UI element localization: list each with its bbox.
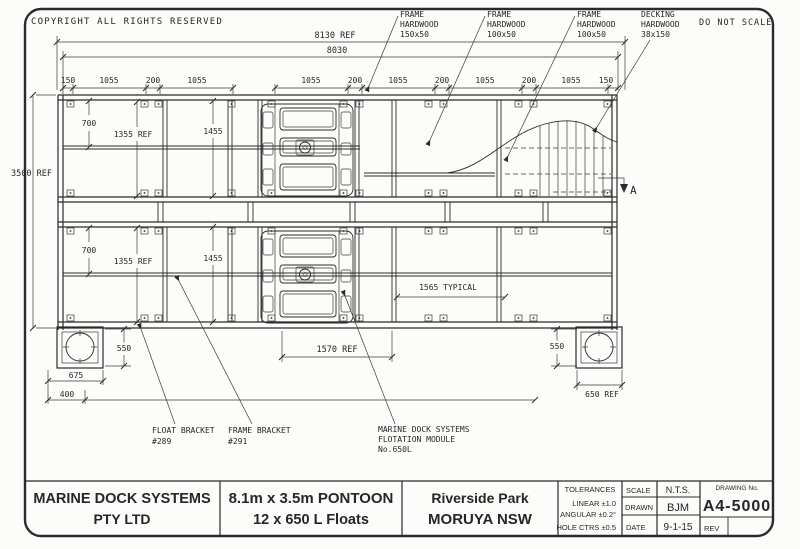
dim-1565-typical: 1565 TYPICAL [419, 283, 477, 292]
decking-planks [447, 121, 617, 197]
flotation-module-bottom [261, 231, 353, 323]
tolerance-linear: LINEAR ±1.0 [572, 499, 616, 508]
dim-675: 675 [69, 371, 84, 380]
dim-3500-ref: 3500 REF [11, 169, 52, 179]
dim-1455-top: 1455 [203, 127, 222, 136]
pontoon-drawing: COPYRIGHT ALL RIGHTS RESERVED DO NOT SCA… [0, 0, 800, 549]
drawn-label: DRAWN [625, 503, 653, 512]
section-a-label: A [630, 184, 637, 197]
callout-float-bracket: FLOAT BRACKET#289 [141, 329, 215, 446]
pile-guide-right [576, 327, 622, 368]
drawn-value: BJM [667, 502, 689, 514]
do-not-scale-note: DO NOT SCALE [699, 18, 772, 28]
dim-chain: 200 [146, 76, 161, 85]
drawing-sheet: COPYRIGHT ALL RIGHTS RESERVED DO NOT SCA… [0, 0, 800, 549]
date-label: DATE [626, 523, 645, 532]
drawing-no-value: A4-5000 [703, 498, 771, 515]
svg-text:FRAME BRACKET#291: FRAME BRACKET#291 [228, 426, 291, 446]
dim-550-left: 550 [117, 344, 132, 353]
drawing-no-label: DRAWING No. [715, 485, 758, 492]
tolerance-hole-ctrs: HOLE CTRS ±0.5 [556, 523, 616, 532]
dim-550-right: 550 [550, 342, 565, 351]
scale-label: SCALE [626, 486, 651, 495]
project-location-line2: MORUYA NSW [428, 511, 533, 528]
title-block: MARINE DOCK SYSTEMS PTY LTD 8.1m x 3.5m … [25, 481, 773, 536]
drawing-title-line1: 8.1m x 3.5m PONTOON [229, 490, 394, 507]
dim-chain: 200 [522, 76, 537, 85]
dim-chain: 1055 [475, 76, 494, 85]
dim-1455-bottom: 1455 [203, 254, 222, 263]
svg-text:MARINE DOCK SYSTEMSFLOTATION: MARINE DOCK SYSTEMSFLOTATION MODULENo.65… [378, 425, 470, 454]
callout-frame-hardwood-2: FRAMEHARDWOOD100x50 [430, 10, 526, 140]
dim-chain: 1055 [99, 76, 118, 85]
svg-text:FLOAT BRACKET#289: FLOAT BRACKET#289 [152, 426, 215, 446]
dim-650-ref: 650 REF [585, 390, 619, 399]
dim-chain: 1055 [187, 76, 206, 85]
svg-text:FRAMEHARDWOOD150x50: FRAMEHARDWOOD150x50 [400, 10, 439, 39]
callout-frame-bracket: FRAME BRACKET#291 [179, 281, 291, 446]
tolerances-header: TOLERANCES [565, 485, 616, 494]
drawing-title-line2: 12 x 650 L Floats [253, 512, 369, 528]
copyright-note: COPYRIGHT ALL RIGHTS RESERVED [31, 17, 223, 27]
dim-chain: 150 [599, 76, 614, 85]
scale-value: N.T.S. [666, 485, 691, 495]
dim-8130-ref: 8130 REF [315, 31, 356, 41]
pile-guide-left [57, 327, 103, 368]
callout-flotation-module: MARINE DOCK SYSTEMSFLOTATION MODULENo.65… [345, 296, 470, 454]
flotation-module-top [261, 104, 353, 196]
dim-chain: 1055 [561, 76, 580, 85]
callout-frame-hardwood-1: FRAMEHARDWOOD150x50 [369, 10, 439, 86]
dim-chain: 150 [61, 76, 76, 85]
dim-1570-ref: 1570 REF [317, 345, 358, 355]
svg-text:FRAMEHARDWOOD100x50: FRAMEHARDWOOD100x50 [487, 10, 526, 39]
tolerance-angular: ANGULAR ±0.2° [560, 510, 616, 519]
company-name-line1: MARINE DOCK SYSTEMS [33, 491, 211, 507]
dim-400: 400 [60, 390, 75, 399]
dim-700-top: 700 [82, 119, 97, 128]
dim-chain: 1055 [301, 76, 320, 85]
dim-chain: 1055 [388, 76, 407, 85]
company-name-line2: PTY LTD [93, 511, 150, 527]
date-value: 9-1-15 [664, 522, 693, 533]
dim-700-bottom: 700 [82, 246, 97, 255]
rev-label: REV [704, 524, 719, 533]
svg-text:DECKINGHARDWOOD38x150: DECKINGHARDWOOD38x150 [641, 10, 680, 39]
project-location-line1: Riverside Park [431, 490, 528, 506]
dim-8030: 8030 [327, 46, 347, 56]
svg-text:FRAMEHARDWOOD100x50: FRAMEHARDWOOD100x50 [577, 10, 616, 39]
dim-1355-bottom: 1355 REF [114, 257, 153, 266]
dim-chain: 200 [435, 76, 450, 85]
dim-chain: 200 [348, 76, 363, 85]
dim-1355-top: 1355 REF [114, 130, 153, 139]
